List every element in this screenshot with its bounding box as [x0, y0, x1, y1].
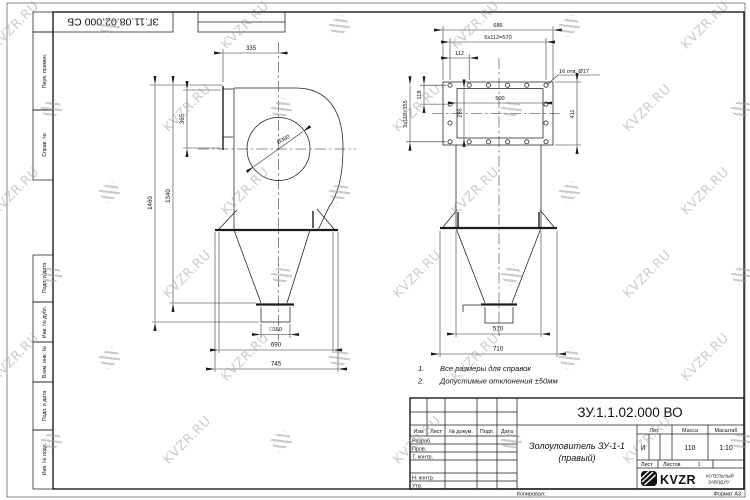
tb-mass-value: 110	[684, 445, 695, 452]
dim-label: 365	[179, 113, 186, 124]
dim-label: 690	[271, 342, 282, 349]
dim-label: 500	[495, 96, 504, 102]
note-text: Допустимые отклонения ±50мм	[439, 377, 558, 386]
tb-sheet-label: Лист	[641, 462, 653, 468]
margin-column: Перв. примен. Справ. № Подп. и дата Инв.…	[33, 12, 53, 489]
dim-label: 112	[455, 51, 464, 57]
tb-header: № докум.	[449, 429, 473, 435]
tb-sheets-label: Листов	[663, 462, 681, 468]
dim-label: 1460	[147, 196, 154, 210]
tb-header: Лит.	[650, 428, 660, 434]
dim-label: 118	[417, 91, 423, 100]
format-label: Формат А3	[714, 492, 741, 498]
holes-callout: 16 отв. Ø17	[559, 69, 589, 75]
tb-product-name: Золоуловитель ЗУ-1-1	[529, 441, 625, 451]
dim-label: 1340	[165, 189, 172, 203]
dim-label: □160	[269, 327, 282, 333]
tb-header: Масса	[682, 428, 698, 434]
sheet-frame	[7, 3, 745, 497]
copied-label: Копировал:	[517, 492, 546, 498]
note-number: 1.	[418, 364, 424, 373]
tb-scale-value: 1:10	[719, 445, 733, 452]
kvzr-logo-icon	[641, 471, 658, 486]
tb-product-name: (правый)	[558, 453, 595, 463]
note-text: Все размеры для справок	[440, 364, 531, 373]
cad-drawing: ЗГ.11.08.02.000 СБ Перв. примен. Справ. …	[0, 0, 750, 500]
stamp-doc-number: ЗГ.11.08.02.000 СБ	[67, 16, 159, 28]
kvzr-logo-subtext: КОТЕЛЬНЫЙ	[706, 474, 734, 479]
tb-header: Подп.	[480, 429, 494, 435]
margin-label: Подп. и дата	[42, 263, 48, 294]
dim-label: 5х112=570	[484, 35, 511, 41]
margin-label: Инв. № подл.	[42, 443, 48, 475]
margin-label: Взам. инв. №	[42, 345, 48, 378]
note-number: 2.	[417, 377, 424, 386]
top-stamp: ЗГ.11.08.02.000 СБ	[53, 12, 285, 32]
margin-label: Справ. №	[42, 133, 48, 157]
tb-doc-number: ЗУ.1.1.02.000 ВО	[577, 405, 682, 420]
drawing-sheet: ЗГ.11.08.02.000 СБ Перв. примен. Справ. …	[0, 0, 750, 500]
margin-label: Перв. примен.	[42, 54, 48, 89]
tb-row-label: Разраб.	[412, 439, 431, 445]
tb-row-label: Т. контр.	[412, 455, 433, 461]
title-block: ЗУ.1.1.02.000 ВО Изм Лист № докум. Подп.…	[410, 398, 744, 498]
margin-label: Инв. № дубл.	[42, 306, 48, 338]
tb-header: Изм	[413, 429, 423, 435]
tb-lit-value: И	[640, 445, 645, 452]
dim-label: 3х118=355	[403, 100, 409, 127]
dim-label: 510	[493, 326, 504, 333]
tb-sheets-value: 1	[698, 462, 701, 468]
tb-row-label: Н. контр.	[412, 476, 434, 482]
kvzr-logo-subtext: ЗАВОД.РУ	[708, 480, 731, 485]
tb-header: Лист	[430, 429, 442, 435]
dim-label: 686	[493, 23, 502, 29]
dim-label: 335	[246, 45, 257, 52]
notes: 1. Все размеры для справок 2. Допустимые…	[417, 364, 558, 386]
tb-row-label: Утв.	[412, 484, 422, 490]
dim-label: 710	[493, 346, 504, 353]
margin-label: Подп. и дата	[42, 391, 48, 422]
side-view: 686 5х112=570 112 118 3х118=355 500 285 …	[403, 23, 600, 357]
kvzr-logo-text: KVZR	[660, 473, 696, 487]
tb-header: Дата	[501, 429, 513, 435]
dim-label: 745	[271, 361, 282, 368]
front-view: 335 365 1340 1460 Ø380 □160 690 745	[147, 42, 356, 372]
tb-row-label: Пров.	[412, 447, 426, 453]
dim-label: 285	[458, 108, 464, 117]
dim-label: 411	[570, 110, 576, 119]
tb-header: Масштаб	[714, 428, 737, 434]
